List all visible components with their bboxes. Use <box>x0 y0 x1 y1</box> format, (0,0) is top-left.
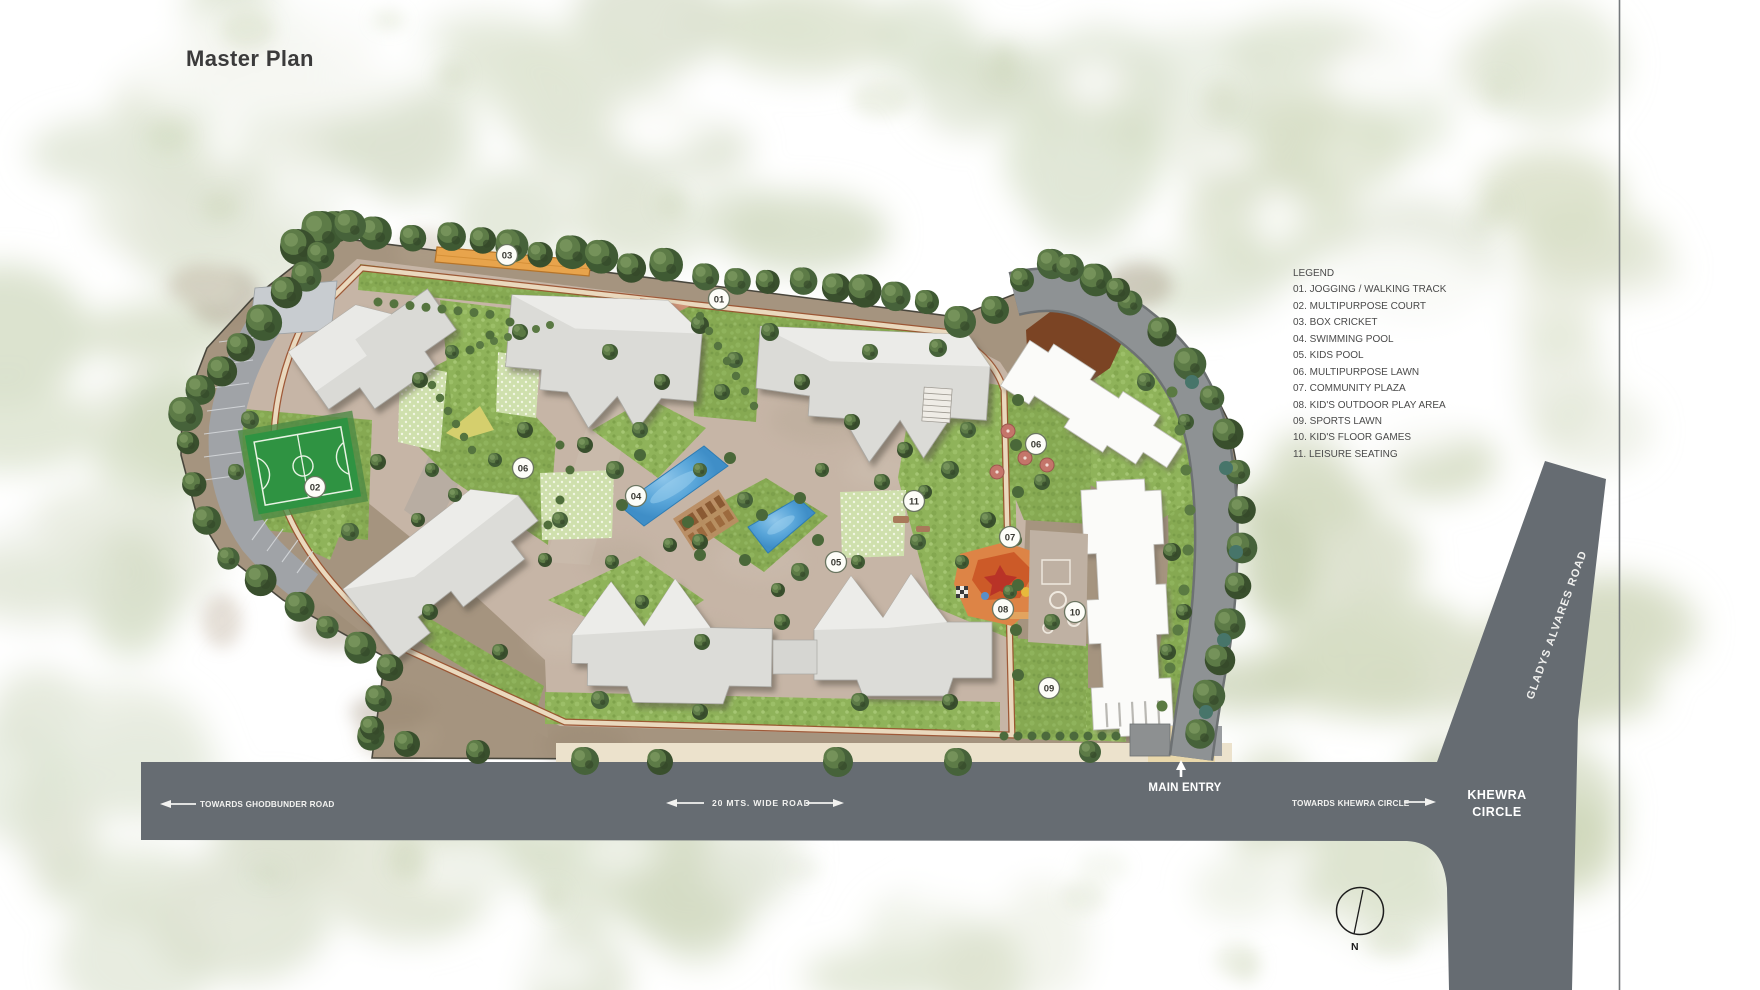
svg-text:07: 07 <box>1005 532 1016 543</box>
svg-text:06: 06 <box>518 463 529 474</box>
svg-text:01: 01 <box>714 294 725 305</box>
svg-text:TOWARDS KHEWRA CIRCLE: TOWARDS KHEWRA CIRCLE <box>1292 799 1410 808</box>
svg-text:05. KIDS POOL: 05. KIDS POOL <box>1293 350 1364 361</box>
svg-text:10: 10 <box>1070 607 1081 618</box>
svg-text:10. KID'S FLOOR GAMES: 10. KID'S FLOOR GAMES <box>1293 432 1411 443</box>
svg-text:08. KID'S OUTDOOR PLAY AREA: 08. KID'S OUTDOOR PLAY AREA <box>1293 400 1446 411</box>
svg-text:06: 06 <box>1031 439 1042 450</box>
svg-text:09: 09 <box>1044 683 1055 694</box>
svg-text:08: 08 <box>998 604 1009 615</box>
svg-text:11: 11 <box>909 496 920 507</box>
svg-text:20 MTS. WIDE ROAD: 20 MTS. WIDE ROAD <box>712 798 811 808</box>
svg-text:04: 04 <box>631 491 642 502</box>
svg-text:02: 02 <box>310 482 321 493</box>
svg-text:04. SWIMMING POOL: 04. SWIMMING POOL <box>1293 334 1394 345</box>
svg-text:11. LEISURE SEATING: 11. LEISURE SEATING <box>1293 449 1398 460</box>
svg-text:N: N <box>1351 941 1359 953</box>
svg-text:09. SPORTS LAWN: 09. SPORTS LAWN <box>1293 416 1382 427</box>
svg-text:01. JOGGING / WALKING TRACK: 01. JOGGING / WALKING TRACK <box>1293 284 1447 295</box>
svg-text:07. COMMUNITY PLAZA: 07. COMMUNITY PLAZA <box>1293 383 1406 394</box>
svg-text:Master Plan: Master Plan <box>186 46 314 71</box>
svg-text:06. MULTIPURPOSE LAWN: 06. MULTIPURPOSE LAWN <box>1293 367 1419 378</box>
svg-text:02. MULTIPURPOSE COURT: 02. MULTIPURPOSE COURT <box>1293 301 1426 312</box>
svg-text:03: 03 <box>502 250 513 261</box>
svg-text:TOWARDS GHODBUNDER ROAD: TOWARDS GHODBUNDER ROAD <box>200 800 335 809</box>
svg-text:KHEWRA: KHEWRA <box>1467 788 1526 802</box>
svg-text:03. BOX CRICKET: 03. BOX CRICKET <box>1293 317 1377 328</box>
svg-text:LEGEND: LEGEND <box>1293 268 1334 279</box>
svg-text:CIRCLE: CIRCLE <box>1472 805 1522 819</box>
svg-text:MAIN ENTRY: MAIN ENTRY <box>1148 782 1221 794</box>
svg-text:05: 05 <box>831 557 842 568</box>
